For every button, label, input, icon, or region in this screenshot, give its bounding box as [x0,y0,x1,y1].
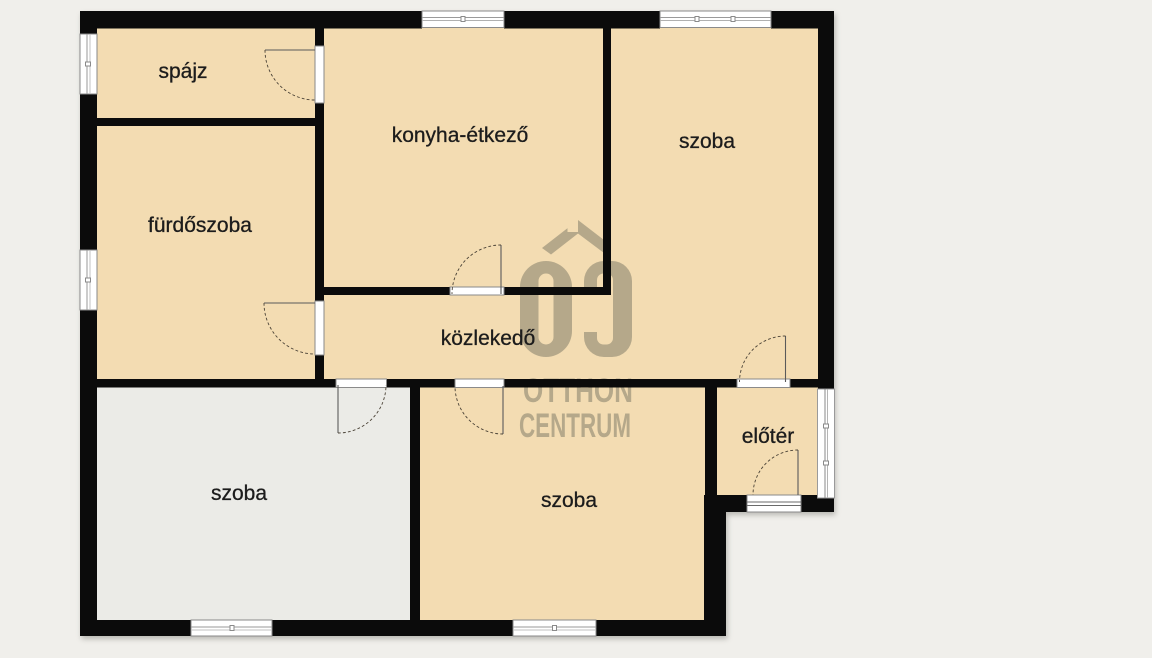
svg-text:szoba: szoba [679,130,735,153]
svg-text:OTTHON: OTTHON [523,372,633,410]
svg-text:spájz: spájz [158,60,207,83]
svg-text:szoba: szoba [211,482,267,505]
svg-text:konyha-étkező: konyha-étkező [392,124,529,147]
svg-text:szoba: szoba [541,489,597,512]
svg-text:fürdőszoba: fürdőszoba [148,214,252,237]
svg-text:CENTRUM: CENTRUM [519,407,631,445]
svg-text:előtér: előtér [742,425,795,448]
svg-text:közlekedő: közlekedő [441,327,536,350]
